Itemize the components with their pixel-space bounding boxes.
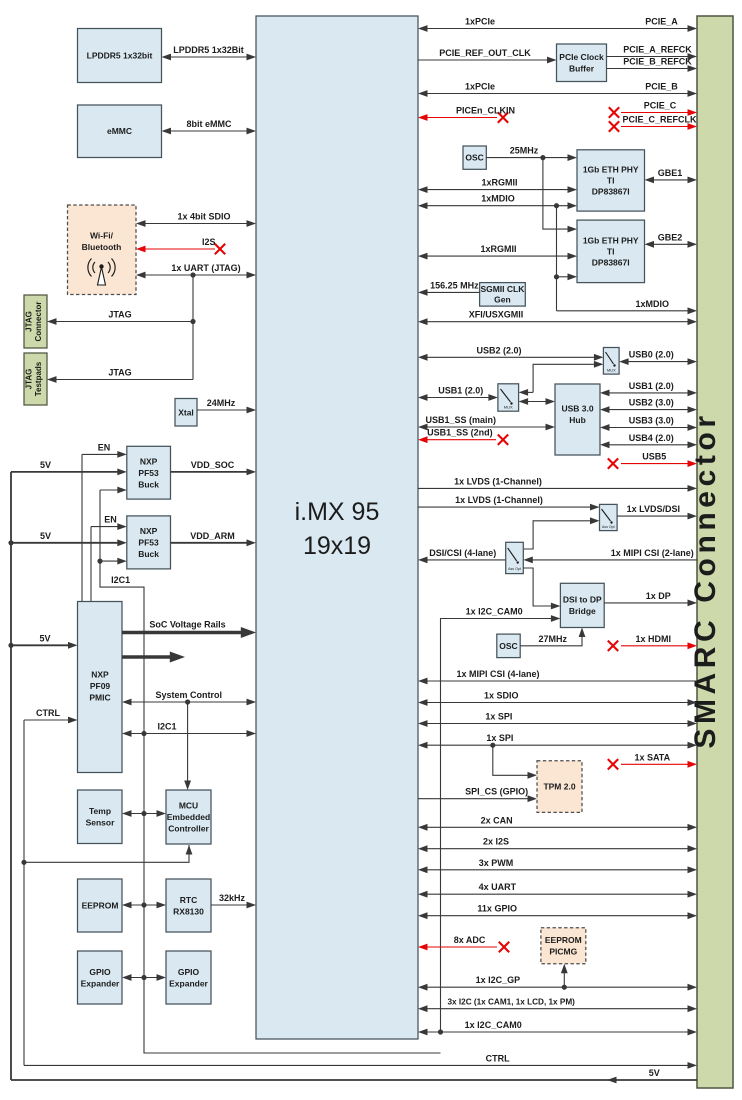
svg-text:SoC Voltage Rails: SoC Voltage Rails [149,620,225,630]
svg-text:1xPCIe: 1xPCIe [465,82,495,92]
svg-text:USB0 (2.0): USB0 (2.0) [629,350,674,360]
svg-text:LPDDR5 1x32Bit: LPDDR5 1x32Bit [173,45,244,55]
svg-text:EEPROM: EEPROM [545,935,582,945]
svg-text:Connector: Connector [34,302,43,342]
svg-text:PF53: PF53 [138,468,159,478]
svg-text:I2S: I2S [202,237,216,247]
svg-text:USB2 (3.0): USB2 (3.0) [629,398,674,408]
svg-text:8x ADC: 8x ADC [454,935,486,945]
svg-text:DP83867I: DP83867I [592,186,630,196]
svg-text:1Gb ETH PHY: 1Gb ETH PHY [583,235,639,245]
svg-text:PCIE_B: PCIE_B [645,82,678,92]
svg-text:RTC: RTC [180,895,197,905]
svg-text:JTAG: JTAG [108,368,131,378]
svg-text:1x SPI: 1x SPI [486,733,513,743]
svg-text:USB4 (2.0): USB4 (2.0) [629,433,674,443]
svg-text:SGMII CLK: SGMII CLK [480,284,525,294]
svg-text:1Gb ETH PHY: 1Gb ETH PHY [583,164,639,174]
svg-text:PMIC: PMIC [89,693,110,703]
svg-text:USB1 (2.0): USB1 (2.0) [629,381,674,391]
svg-text:1x LVDS/DSI: 1x LVDS/DSI [627,504,680,514]
svg-text:JTAG: JTAG [25,369,34,390]
svg-text:TI: TI [607,175,615,185]
svg-text:2x I2S: 2x I2S [483,837,509,847]
svg-text:USB1 (2.0): USB1 (2.0) [438,386,483,396]
svg-text:PICEn_CLKIN: PICEn_CLKIN [456,106,515,116]
svg-text:Xtal: Xtal [178,408,194,418]
svg-text:24MHz: 24MHz [207,398,236,408]
svg-text:i.MX 95: i.MX 95 [295,498,380,526]
svg-text:LPDDR5 1x32bit: LPDDR5 1x32bit [87,51,153,61]
svg-text:1x LVDS (1-Channel): 1x LVDS (1-Channel) [454,476,542,486]
svg-text:3x I2C (1x CAM1, 1x LCD, 1x PM: 3x I2C (1x CAM1, 1x LCD, 1x PM) [447,998,575,1007]
svg-text:PCIE_C_REFCLK: PCIE_C_REFCLK [622,115,697,125]
svg-text:EEPROM: EEPROM [82,901,119,911]
svg-text:RX8130: RX8130 [173,906,204,916]
svg-text:1x SATA: 1x SATA [634,752,670,762]
svg-text:NXP: NXP [91,670,109,680]
svg-text:NXP: NXP [140,456,158,466]
svg-text:8bit eMMC: 8bit eMMC [187,119,233,129]
svg-text:TI: TI [607,246,615,256]
svg-text:1x DP: 1x DP [646,591,671,601]
svg-text:1x MIPI CSI (4-lane): 1x MIPI CSI (4-lane) [456,669,539,679]
svg-text:PCIE_A_REFCK: PCIE_A_REFCK [623,45,692,55]
svg-text:GPIO: GPIO [89,967,111,977]
svg-text:Buffer: Buffer [569,64,595,74]
svg-text:eMMC: eMMC [107,126,132,136]
svg-text:1x 4bit SDIO: 1x 4bit SDIO [177,212,230,222]
svg-text:USB5: USB5 [642,452,666,462]
svg-text:DSI to DP: DSI to DP [563,595,602,605]
svg-text:32kHz: 32kHz [219,893,246,903]
svg-text:PCIE_A: PCIE_A [645,17,678,27]
svg-text:Buck: Buck [138,479,159,489]
svg-text:1xRGMII: 1xRGMII [481,178,517,188]
svg-text:XFI/USXGMII: XFI/USXGMII [469,310,524,320]
svg-text:Controller: Controller [168,824,209,834]
svg-text:1x SPI: 1x SPI [485,712,512,722]
svg-text:GBE1: GBE1 [658,168,683,178]
svg-text:Wi-Fi/: Wi-Fi/ [90,230,114,240]
svg-text:Bluetooth: Bluetooth [82,242,122,252]
svg-text:25MHz: 25MHz [510,146,539,156]
svg-text:TPM 2.0: TPM 2.0 [543,782,575,792]
svg-text:Expander: Expander [81,978,120,988]
svg-text:DSI/CSI (4-lane): DSI/CSI (4-lane) [429,548,496,558]
svg-text:MCU: MCU [179,801,198,811]
svg-text:PCIe Clock: PCIe Clock [559,52,604,62]
svg-text:19x19: 19x19 [303,532,371,560]
svg-text:I2C1: I2C1 [111,575,130,585]
svg-text:USB1_SS (2nd): USB1_SS (2nd) [427,428,493,438]
svg-text:1x HDMI: 1x HDMI [636,634,672,644]
svg-text:1x MIPI CSI (2-lane): 1x MIPI CSI (2-lane) [611,548,694,558]
svg-text:VDD_SOC: VDD_SOC [191,460,235,470]
svg-text:USB2 (2.0): USB2 (2.0) [476,345,521,355]
svg-text:2x CAN: 2x CAN [481,815,513,825]
svg-text:1x I2C_CAM0: 1x I2C_CAM0 [465,1020,522,1030]
svg-text:System Control: System Control [155,690,222,700]
svg-text:I2C1: I2C1 [157,722,176,732]
svg-text:PF09: PF09 [90,681,111,691]
svg-text:1x LVDS (1-Channel): 1x LVDS (1-Channel) [455,495,543,505]
svg-text:5V: 5V [649,1068,660,1078]
svg-text:OSC: OSC [499,641,517,651]
svg-text:Temp: Temp [89,806,111,816]
svg-text:1xMDIO: 1xMDIO [481,194,515,204]
svg-text:1x UART (JTAG): 1x UART (JTAG) [171,263,240,273]
svg-text:Buck: Buck [138,549,159,559]
svg-text:MUX: MUX [607,368,616,373]
svg-text:3x PWM: 3x PWM [479,858,514,868]
svg-text:OSC: OSC [465,153,483,163]
svg-text:PCIE_B_REFCK: PCIE_B_REFCK [623,57,692,67]
svg-text:Embedded: Embedded [167,812,210,822]
svg-text:1xMDIO: 1xMDIO [636,299,670,309]
svg-text:DP83867I: DP83867I [592,257,630,267]
svg-text:EN: EN [98,442,111,452]
svg-text:1x I2C_CAM0: 1x I2C_CAM0 [466,607,523,617]
svg-text:4x UART: 4x UART [479,882,517,892]
svg-text:USB3 (3.0): USB3 (3.0) [629,416,674,426]
svg-text:Gen: Gen [494,295,511,305]
svg-text:Expander: Expander [169,978,208,988]
svg-text:1xPCIe: 1xPCIe [465,17,495,27]
svg-text:Sensor: Sensor [86,818,116,828]
svg-text:Hub: Hub [569,415,586,425]
svg-text:GBE2: GBE2 [658,232,683,242]
svg-text:Ass Opt: Ass Opt [508,567,521,571]
svg-text:11x GPIO: 11x GPIO [477,904,517,914]
svg-text:PCIE_C: PCIE_C [644,101,677,111]
svg-text:Ass Opt: Ass Opt [602,525,615,529]
svg-text:156.25 MHz: 156.25 MHz [430,280,479,290]
svg-text:GPIO: GPIO [178,967,200,977]
svg-text:CTRL: CTRL [36,708,60,718]
svg-text:5V: 5V [39,633,50,643]
svg-text:PCIE_REF_OUT_CLK: PCIE_REF_OUT_CLK [439,48,531,58]
svg-text:5V: 5V [40,460,51,470]
svg-text:PICMG: PICMG [549,947,577,957]
svg-text:Bridge: Bridge [569,606,596,616]
svg-text:NXP: NXP [140,526,158,536]
svg-text:5V: 5V [40,531,51,541]
svg-text:SPI_CS (GPIO): SPI_CS (GPIO) [465,787,528,797]
svg-text:27MHz: 27MHz [538,634,567,644]
svg-text:JTAG: JTAG [25,311,34,332]
svg-text:1x SDIO: 1x SDIO [484,691,519,701]
svg-text:VDD_ARM: VDD_ARM [190,531,235,541]
svg-text:1xRGMII: 1xRGMII [480,244,516,254]
svg-text:SMARC Connector: SMARC Connector [689,411,722,748]
svg-text:PF53: PF53 [138,537,159,547]
svg-text:CTRL: CTRL [486,1053,510,1063]
svg-text:USB1_SS (main): USB1_SS (main) [426,415,497,425]
svg-text:JTAG: JTAG [108,310,131,320]
svg-text:1x I2C_GP: 1x I2C_GP [476,975,521,985]
svg-text:Testpads: Testpads [34,361,43,396]
svg-text:MUX: MUX [504,405,513,410]
svg-text:EN: EN [104,515,117,525]
svg-text:USB 3.0: USB 3.0 [561,403,593,413]
